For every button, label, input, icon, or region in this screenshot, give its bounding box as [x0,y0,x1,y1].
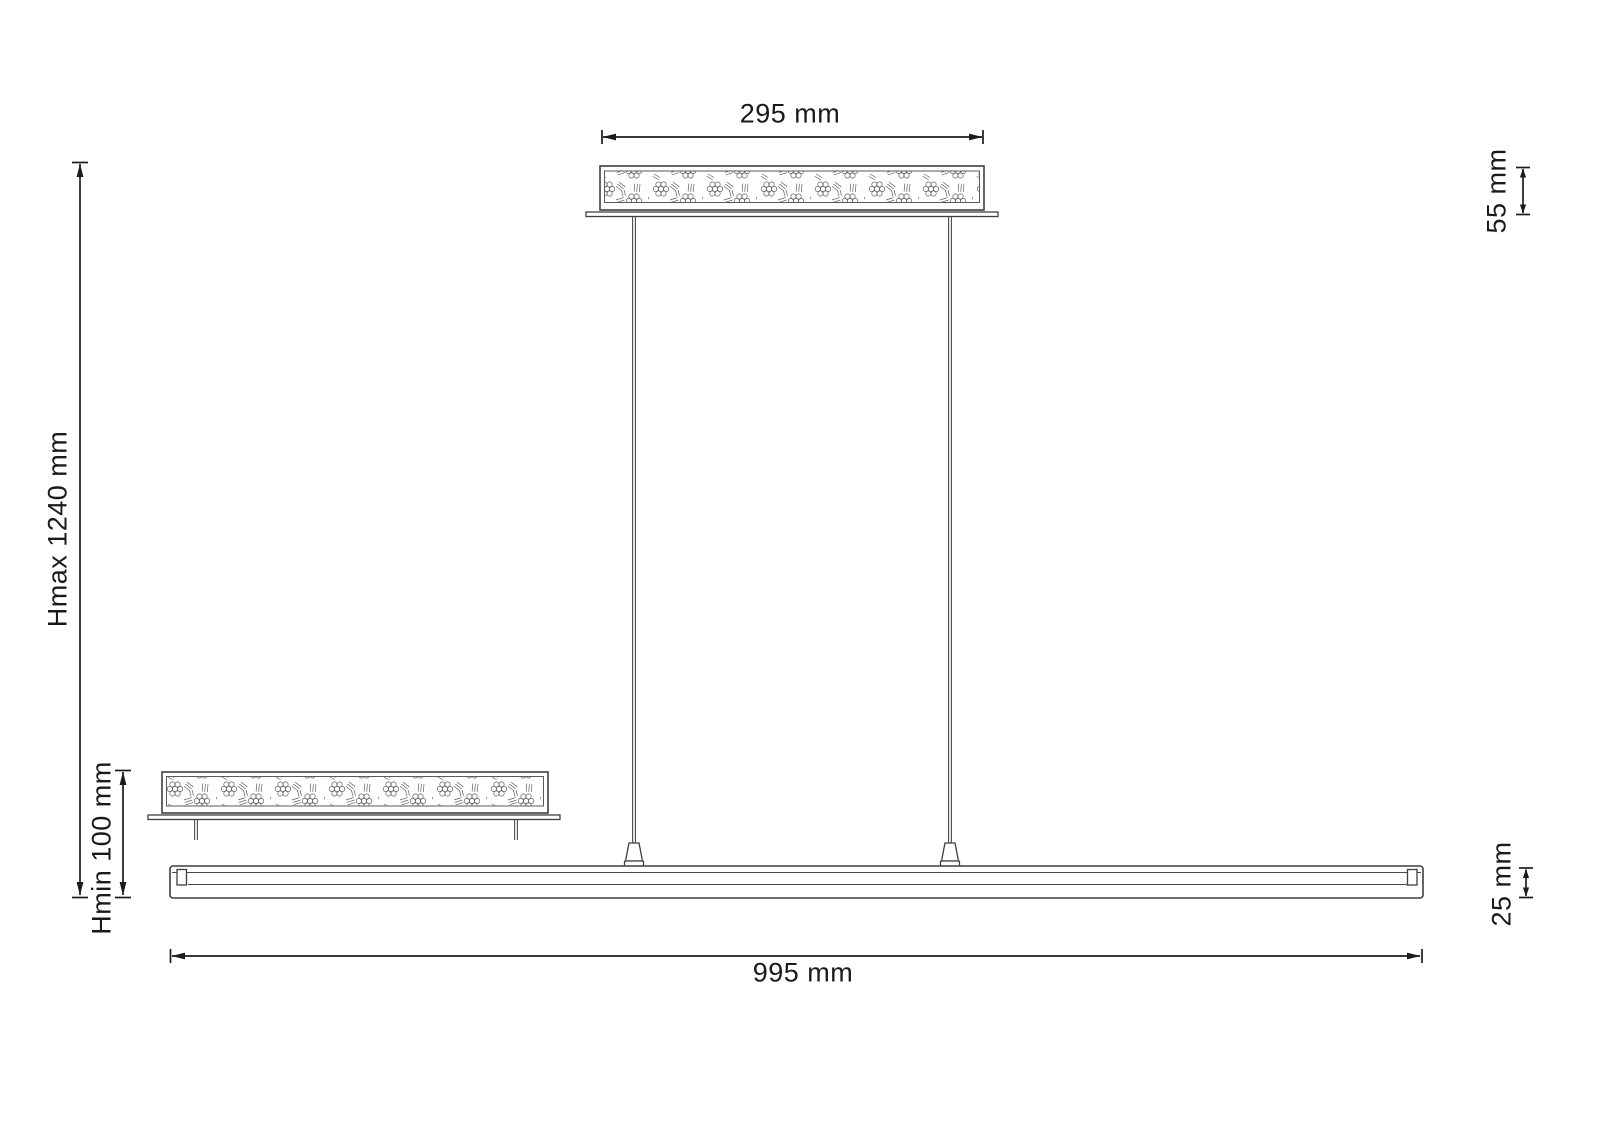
bar-length-label: 995 mm [753,958,854,989]
canopy-base-plate [586,212,998,217]
max-height-label: Hmax 1240 mm [43,431,74,628]
bar-height-label: 25 mm [1487,841,1518,926]
ceiling-canopy-extended-view [586,166,998,217]
canopy-height-label: 55 mm [1482,148,1513,233]
pendant-lamp-dimension-drawing: 295 mm 55 mm Hmax 1240 mm Hmin 100 mm 99… [0,0,1600,1131]
ceiling-canopy-flush-view [148,772,560,840]
suspension-cables [633,217,952,844]
canopy-base-plate [148,815,560,820]
canopy-width-dimension-arrow [602,130,983,144]
cable-grippers [625,843,960,867]
canopy-height-dimension-arrow [1516,168,1530,215]
canopy-width-label: 295 mm [740,99,841,130]
light-bar [170,866,1423,898]
bar-end-cap-left [177,870,187,886]
canopy-crystal-texture [167,777,544,807]
cable-stubs [195,820,518,841]
bar-end-cap-right [1408,870,1418,886]
bar-height-dimension-arrow [1519,868,1533,898]
min-height-label: Hmin 100 mm [87,761,118,935]
canopy-crystal-texture [605,171,980,203]
